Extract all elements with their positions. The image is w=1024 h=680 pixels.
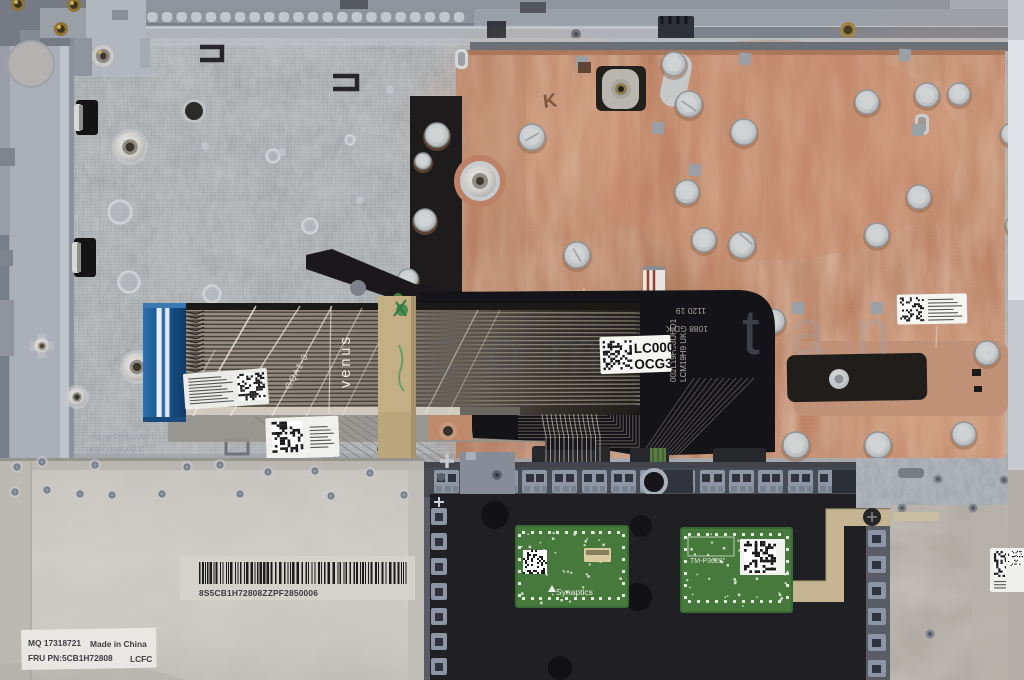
svg-text:Made in China: Made in China [90, 639, 147, 649]
svg-text:OCG3: OCG3 [634, 356, 673, 372]
svg-text:002-0000007 C: 002-0000007 C [86, 444, 145, 455]
svg-text:venus: venus [338, 334, 354, 388]
svg-text:LCFC: LCFC [130, 654, 152, 664]
svg-text:MQ 17318721: MQ 17318721 [28, 638, 81, 648]
svg-text:JSA78 F8 SMART: JSA78 F8 SMART [86, 432, 155, 443]
svg-text:8S5CB1H72808ZZPF2850006: 8S5CB1H72808ZZPF2850006 [199, 588, 318, 598]
svg-text:Synaptics: Synaptics [556, 587, 593, 597]
svg-text:com: com [428, 316, 627, 388]
svg-text:LC000: LC000 [634, 340, 675, 356]
svg-text:FRU PN:5CB1H72808: FRU PN:5CB1H72808 [28, 653, 113, 663]
svg-text:tan: tan [742, 296, 921, 368]
svg-text:TM-P3628: TM-P3628 [690, 558, 723, 565]
svg-text:LCM19H9 UK: LCM19H9 UK [679, 332, 688, 382]
svg-text:1120 19: 1120 19 [676, 306, 706, 316]
